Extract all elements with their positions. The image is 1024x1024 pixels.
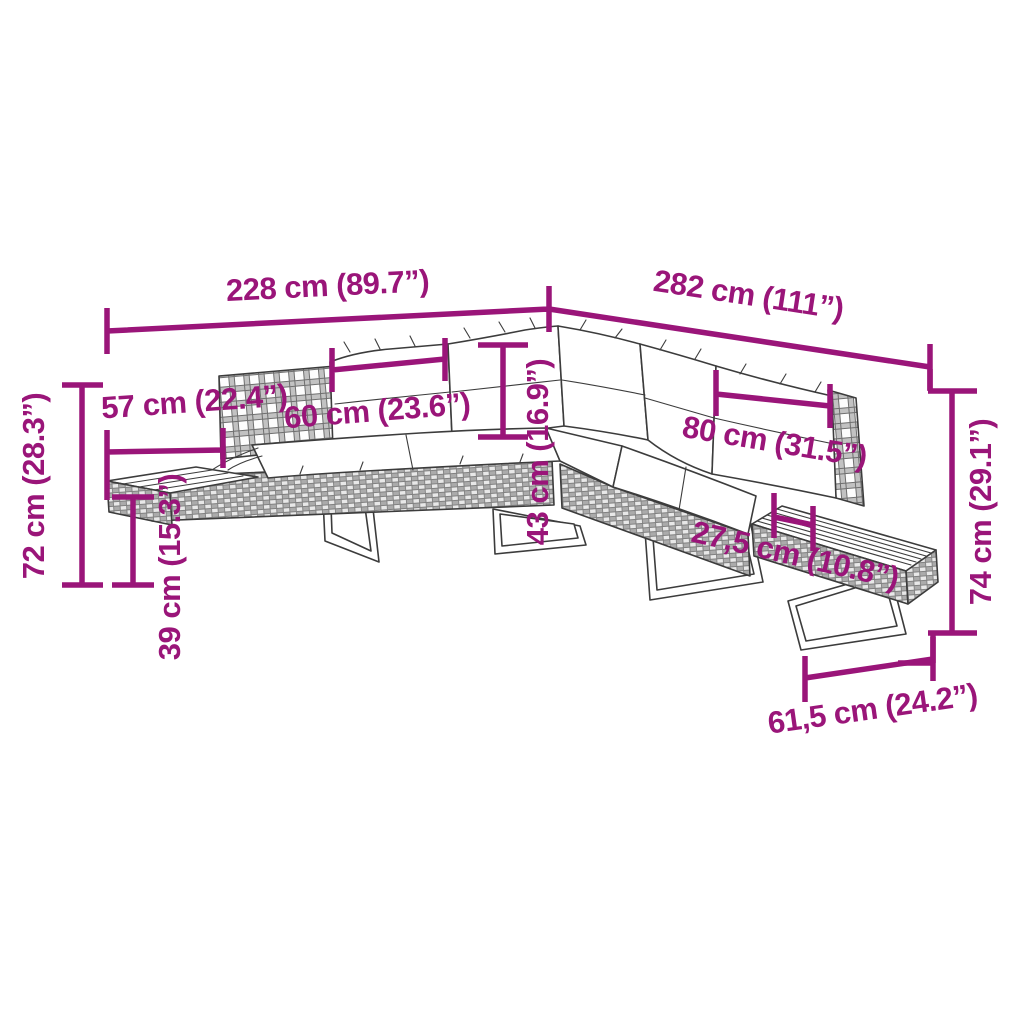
dim-label-282: 282 cm (111”)	[651, 263, 846, 326]
product-dimension-diagram: 228 cm (89.7”) 282 cm (111”) 57 cm (22.4…	[0, 0, 1024, 1024]
dim-label-74: 74 cm (29.1”)	[963, 419, 998, 606]
dim-label-39: 39 cm (15.3”)	[152, 474, 187, 661]
dim-label-72: 72 cm (28.3”)	[16, 393, 51, 580]
dim-label-43: 43 cm (16.9”)	[520, 359, 555, 546]
dim-line-72	[62, 385, 103, 585]
dim-label-228: 228 cm (89.7”)	[225, 263, 430, 308]
sofa-dimension-drawing: 228 cm (89.7”) 282 cm (111”) 57 cm (22.4…	[0, 0, 1024, 1024]
dim-label-61-5: 61,5 cm (24.2”)	[765, 677, 979, 741]
back-cushion	[640, 344, 716, 474]
corner-back-cushion	[558, 326, 648, 440]
